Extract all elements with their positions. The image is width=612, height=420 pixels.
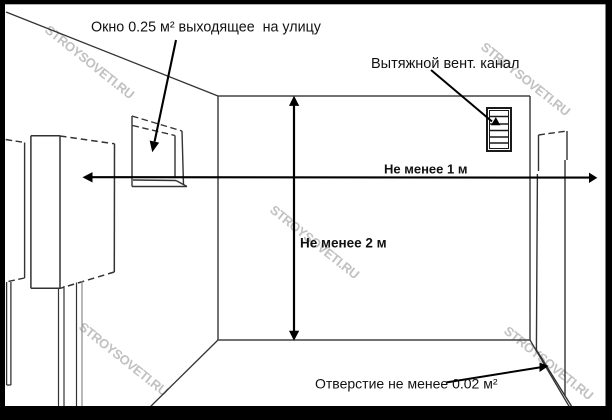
svg-text:Окно 0.25 м² выходящее на ули: Окно 0.25 м² выходящее на улицу bbox=[91, 20, 322, 36]
svg-text:Не менее 1 м: Не менее 1 м bbox=[384, 162, 467, 177]
svg-text:Вытяжной вент. канал: Вытяжной вент. канал bbox=[371, 56, 519, 72]
svg-text:Отверстие не менее 0.02 м²: Отверстие не менее 0.02 м² bbox=[315, 376, 498, 392]
svg-text:Не менее 2 м: Не менее 2 м bbox=[300, 235, 387, 250]
